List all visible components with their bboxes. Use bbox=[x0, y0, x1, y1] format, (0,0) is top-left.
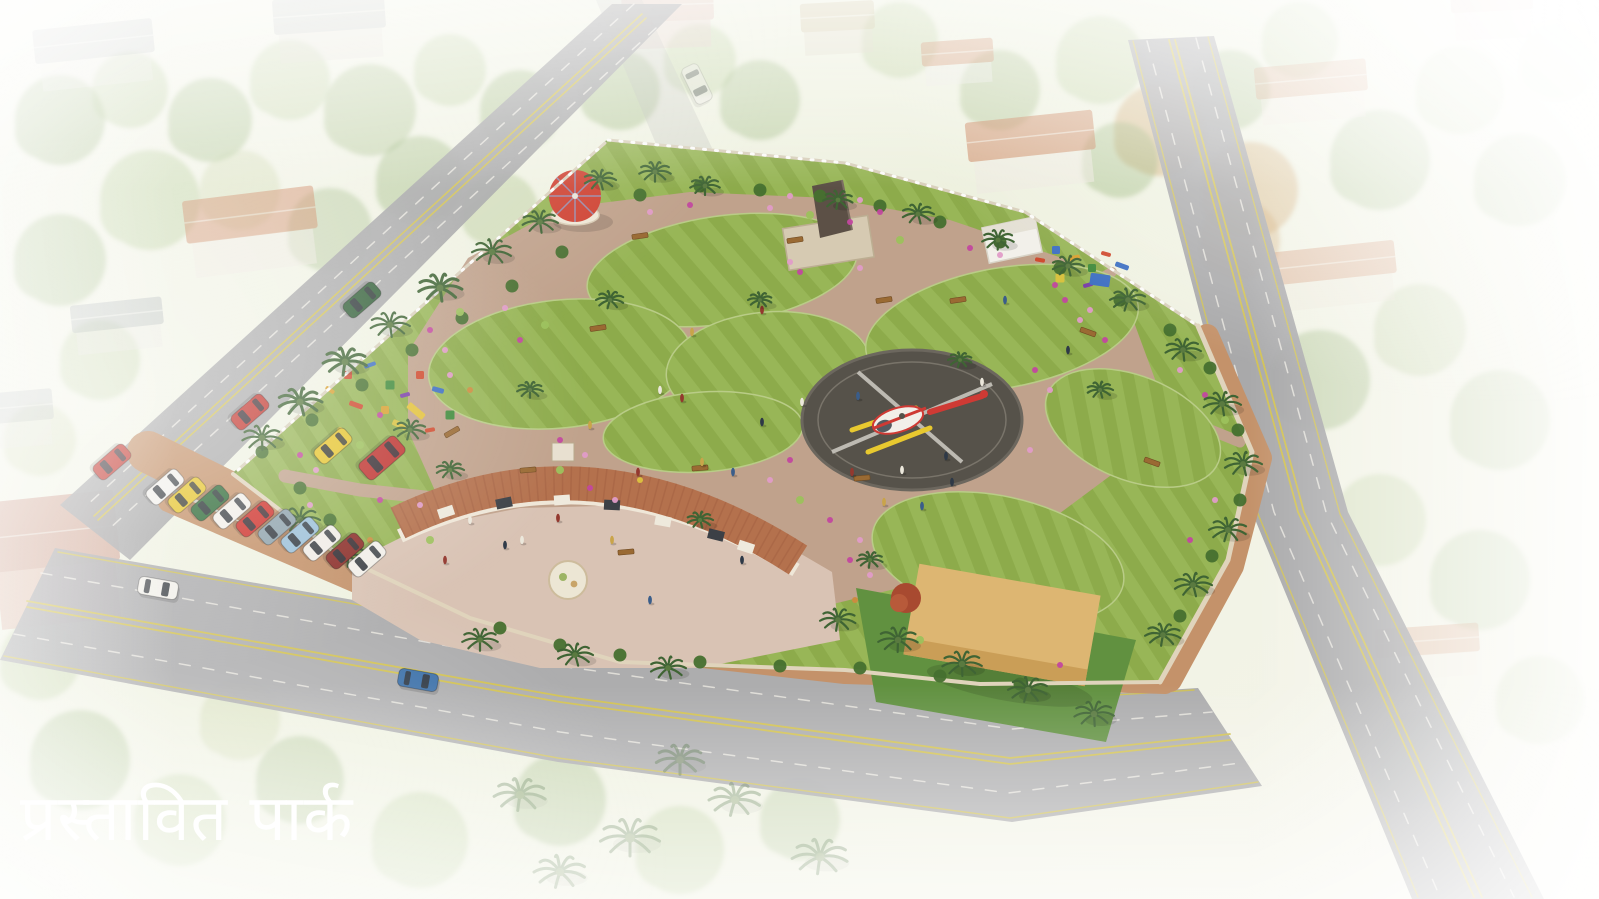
white-wash-mid-left bbox=[0, 0, 1599, 899]
park-scene-svg bbox=[0, 0, 1599, 899]
park-title-watermark: प्रस्तावित पार्क bbox=[20, 772, 353, 859]
proposed-park-aerial-render: प्रस्तावित पार्क bbox=[0, 0, 1599, 899]
